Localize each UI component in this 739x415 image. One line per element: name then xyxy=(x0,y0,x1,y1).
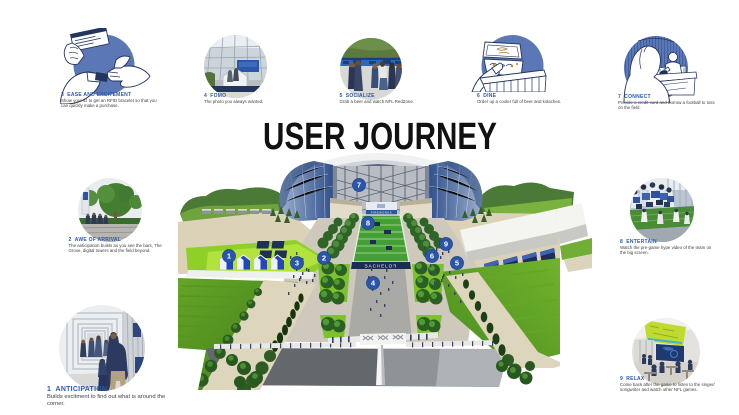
svg-text:FIREWORKS: FIREWORKS xyxy=(371,211,392,215)
svg-text:6: 6 xyxy=(430,252,434,261)
svg-text:7: 7 xyxy=(357,181,361,190)
svg-text:BACHELOR: BACHELOR xyxy=(365,264,398,269)
svg-text:5: 5 xyxy=(455,259,459,268)
svg-text:8: 8 xyxy=(366,219,370,228)
svg-text:9: 9 xyxy=(444,240,448,249)
svg-text:1: 1 xyxy=(227,252,231,261)
svg-text:2: 2 xyxy=(322,254,326,263)
svg-text:3: 3 xyxy=(295,259,299,268)
